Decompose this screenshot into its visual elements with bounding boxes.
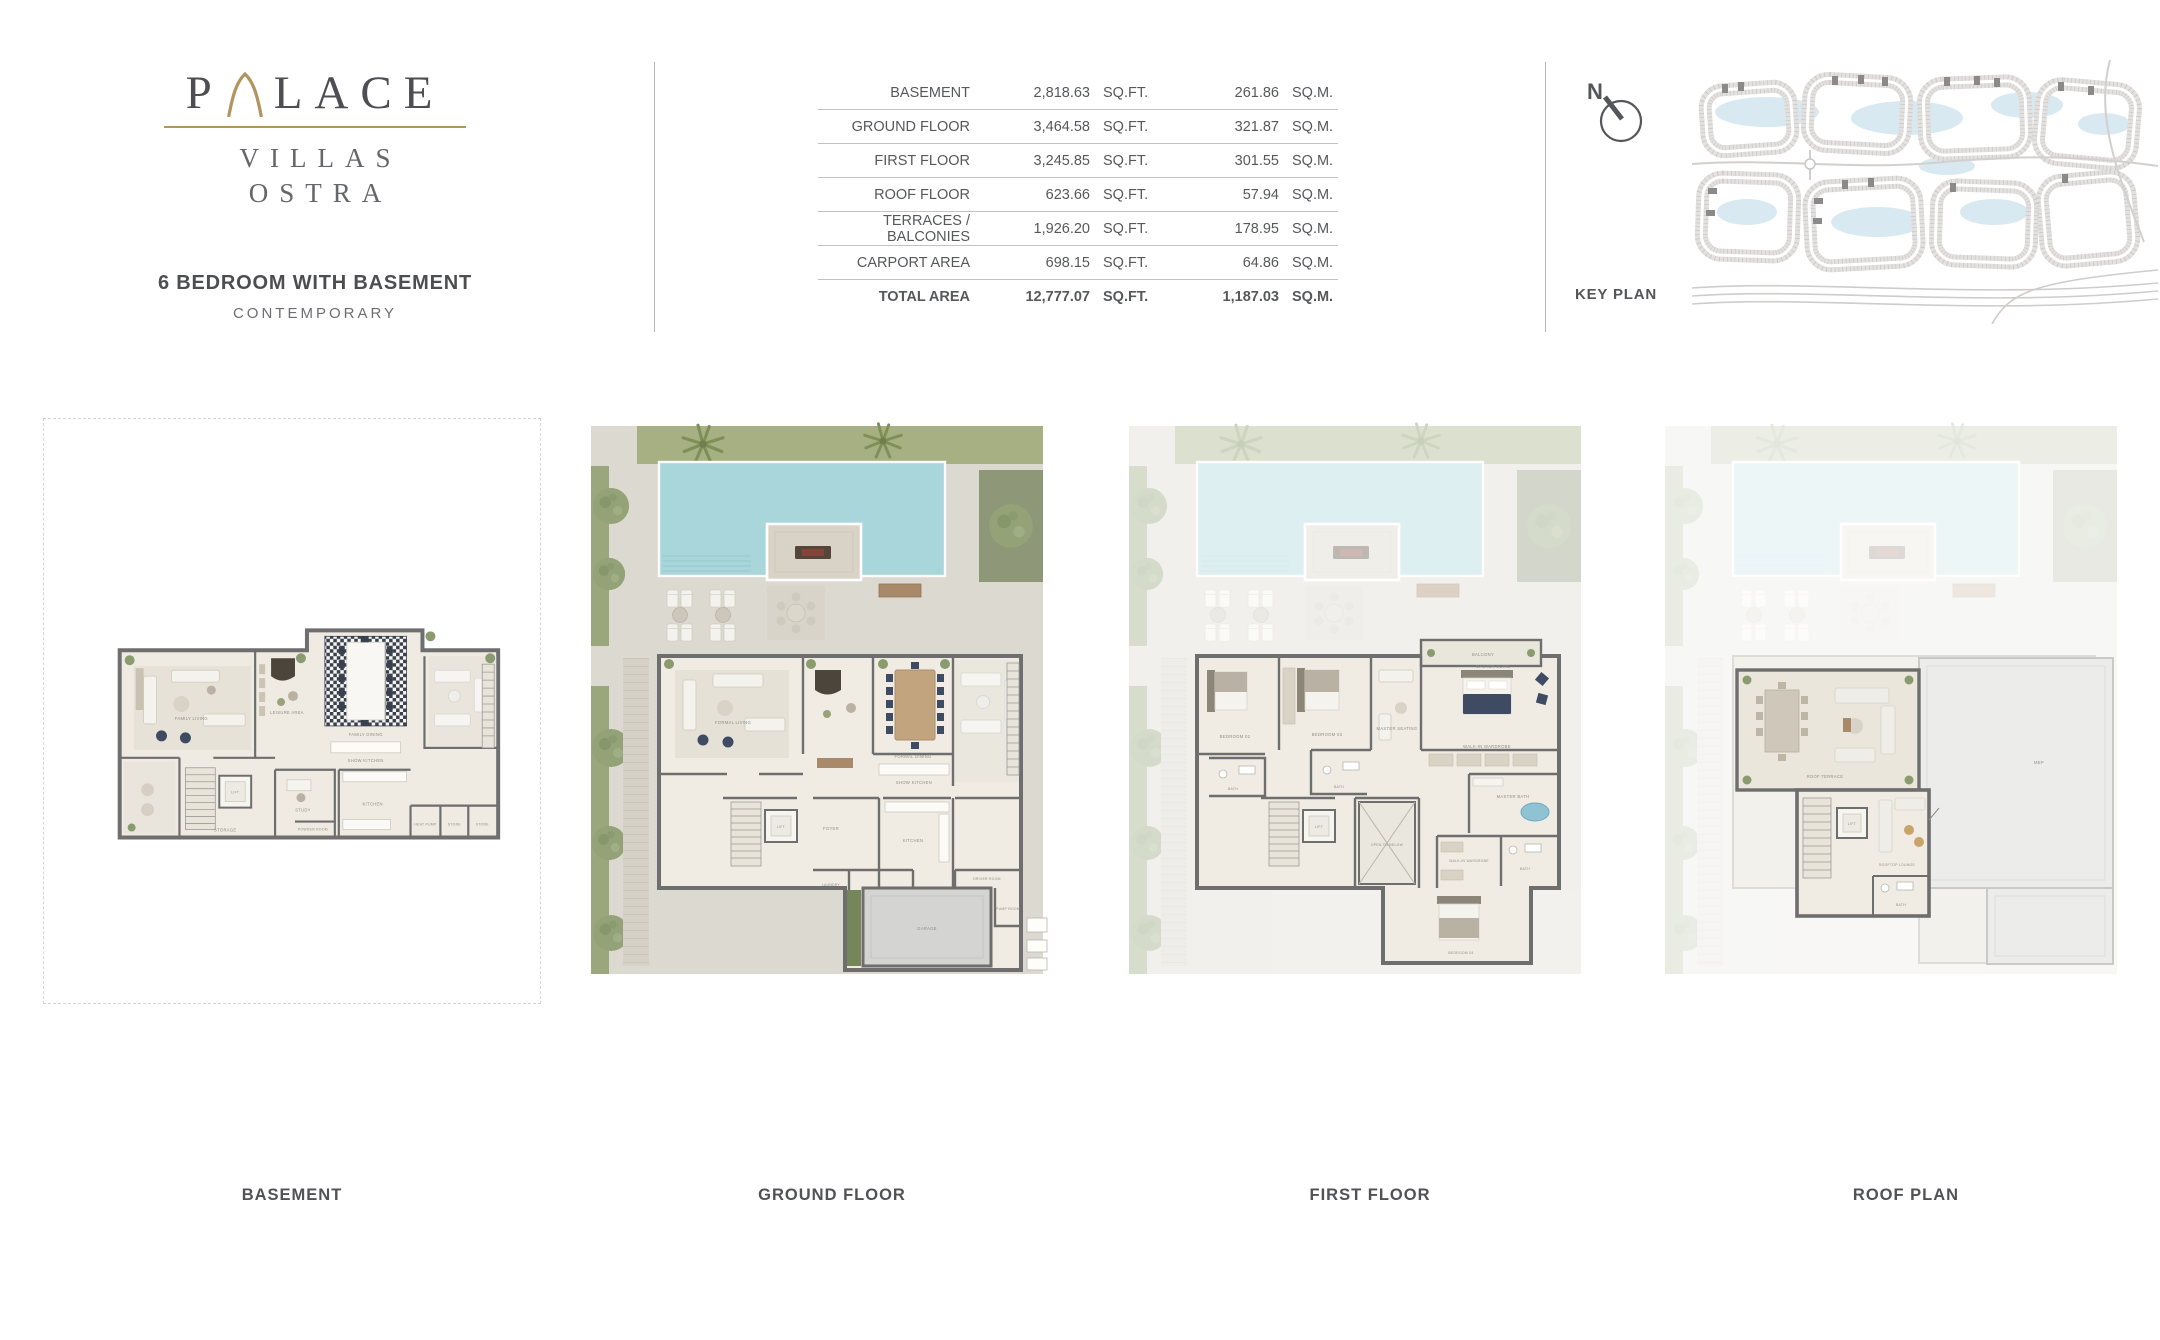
table-row: FIRST FLOOR 3,245.85 SQ.FT. 301.55 SQ.M. <box>818 143 1338 177</box>
area-table: BASEMENT 2,818.63 SQ.FT. 261.86 SQ.M. GR… <box>818 76 1338 313</box>
room-label: MASTER SUITE <box>1476 664 1511 669</box>
header-divider-left <box>654 62 655 332</box>
room-label: SHOW KITCHEN <box>896 780 932 785</box>
sqft-unit: SQ.FT. <box>1090 221 1179 237</box>
room-label: LIFT <box>231 791 239 795</box>
caption-first-floor: FIRST FLOOR <box>1121 1186 1619 1205</box>
caption-basement: BASEMENT <box>43 1186 541 1205</box>
style-subtitle: CONTEMPORARY <box>150 305 480 322</box>
row-label: TERRACES / BALCONIES <box>818 213 970 245</box>
unit-type-title: 6 BEDROOM WITH BASEMENT <box>150 272 480 295</box>
sqft-value: 623.66 <box>970 187 1090 203</box>
room-label: MASTER SEATING <box>1377 726 1418 731</box>
sqft-value: 2,818.63 <box>970 85 1090 101</box>
ground-floor-plan-panel: FORMAL LIVING FORMAL DINING SHOW KITCHEN… <box>583 418 1081 1004</box>
gold-divider <box>164 126 466 128</box>
room-label: STORE <box>476 823 490 827</box>
room-label: FORMAL LIVING <box>715 720 751 725</box>
room-label: SHOW KITCHEN <box>348 758 384 763</box>
room-label: ROOF TERRACE <box>1807 774 1844 779</box>
sqm-value: 178.95 <box>1179 221 1279 237</box>
row-label: ROOF FLOOR <box>818 187 970 203</box>
roof-plan-panel: MEP ROOF TERRACE LIFT ROOFTOP LOUNGE <box>1657 418 2155 1004</box>
sqm-unit: SQ.M. <box>1279 289 1333 305</box>
wordmark-lace: LACE <box>274 70 445 117</box>
room-label: KITCHEN <box>903 838 923 843</box>
sqm-unit: SQ.M. <box>1279 119 1333 135</box>
table-row: BASEMENT 2,818.63 SQ.FT. 261.86 SQ.M. <box>818 76 1338 109</box>
sqft-unit: SQ.FT. <box>1090 85 1179 101</box>
sqft-value: 12,777.07 <box>970 289 1090 305</box>
room-label: ROOFTOP LOUNGE <box>1879 863 1916 867</box>
room-label: STORAGE <box>214 828 236 833</box>
sqm-unit: SQ.M. <box>1279 255 1333 271</box>
row-label: BASEMENT <box>818 85 970 101</box>
sqft-unit: SQ.FT. <box>1090 153 1179 169</box>
room-label: BALCONY <box>1472 652 1494 657</box>
first-floor-plan-panel: BALCONY MASTER SUITE WALK-IN WARDROBE MA <box>1121 418 1619 1004</box>
room-label: GARAGE <box>917 926 937 931</box>
room-label: FOYER <box>823 826 839 831</box>
brand-line-villas: VILLAS <box>150 141 480 176</box>
brand-logo: P LACE VILLAS OSTRA <box>150 70 480 211</box>
ground-floor-plan: FORMAL LIVING FORMAL DINING SHOW KITCHEN… <box>583 418 1081 1004</box>
brochure-page: P LACE VILLAS OSTRA 6 BEDROOM WITH BASEM… <box>0 0 2160 1340</box>
room-label: PUMP ROOM <box>996 907 1020 911</box>
room-label: FORMAL DINING <box>894 754 931 759</box>
row-label: TOTAL AREA <box>818 289 970 305</box>
north-compass-icon: N <box>1584 78 1646 144</box>
sqft-unit: SQ.FT. <box>1090 255 1179 271</box>
sqft-unit: SQ.FT. <box>1090 187 1179 203</box>
sqm-value: 57.94 <box>1179 187 1279 203</box>
room-label: LIFT <box>777 825 785 829</box>
room-label: BATH <box>1520 867 1530 871</box>
row-label: CARPORT AREA <box>818 255 970 271</box>
caption-roof-plan: ROOF PLAN <box>1657 1186 2155 1205</box>
arch-icon <box>226 71 264 117</box>
room-label: KITCHEN <box>362 802 382 807</box>
room-label: BATH <box>1228 787 1238 791</box>
sqm-value: 1,187.03 <box>1179 289 1279 305</box>
sqft-value: 3,464.58 <box>970 119 1090 135</box>
room-label: LIFT <box>1848 822 1856 826</box>
table-row: ROOF FLOOR 623.66 SQ.FT. 57.94 SQ.M. <box>818 177 1338 211</box>
key-plan-label: KEY PLAN <box>1558 286 1674 303</box>
roof-plan: MEP ROOF TERRACE LIFT ROOFTOP LOUNGE <box>1657 418 2155 1004</box>
sqft-value: 3,245.85 <box>970 153 1090 169</box>
room-label: POWDER ROOM <box>298 828 328 832</box>
sqm-value: 321.87 <box>1179 119 1279 135</box>
room-label: STUDY <box>295 808 311 813</box>
room-label: WALK-IN WARDROBE <box>1449 859 1489 863</box>
room-label: BATH <box>1334 785 1344 789</box>
wordmark-p: P <box>186 70 224 117</box>
room-label: HEAT PUMP <box>414 823 437 827</box>
sqm-value: 261.86 <box>1179 85 1279 101</box>
brand-wordmark: P LACE <box>150 70 480 117</box>
sqft-value: 1,926.20 <box>970 221 1090 237</box>
row-label: FIRST FLOOR <box>818 153 970 169</box>
brand-line-ostra: OSTRA <box>150 176 480 211</box>
sqm-unit: SQ.M. <box>1279 187 1333 203</box>
sqft-unit: SQ.FT. <box>1090 289 1179 305</box>
room-label: FAMILY LIVING <box>175 716 208 721</box>
room-label: MASTER BATH <box>1497 794 1530 799</box>
table-row: GROUND FLOOR 3,464.58 SQ.FT. 321.87 SQ.M… <box>818 109 1338 143</box>
room-label: STORE <box>448 823 462 827</box>
sqm-value: 64.86 <box>1179 255 1279 271</box>
sqm-unit: SQ.M. <box>1279 85 1333 101</box>
basement-plan-panel: FAMILY LIVING LEISURE AREA FAMILY DINING… <box>43 418 541 1004</box>
table-row: TERRACES / BALCONIES 1,926.20 SQ.FT. 178… <box>818 211 1338 245</box>
room-label: BEDROOM 02 <box>1220 734 1251 739</box>
key-plan-map <box>1692 60 2158 324</box>
compass-n-label: N <box>1587 79 1603 104</box>
room-label: BEDROOM 04 <box>1448 951 1473 955</box>
caption-ground-floor: GROUND FLOOR <box>583 1186 1081 1205</box>
basement-floor-plan: FAMILY LIVING LEISURE AREA FAMILY DINING… <box>44 419 540 1003</box>
sqft-value: 698.15 <box>970 255 1090 271</box>
sqm-unit: SQ.M. <box>1279 221 1333 237</box>
room-label: OPEN TO BELOW <box>1371 843 1404 847</box>
room-label: DRIVER ROOM <box>973 877 1001 881</box>
sqm-value: 301.55 <box>1179 153 1279 169</box>
room-label: LEISURE AREA <box>270 710 304 715</box>
room-label: FAMILY DINING <box>349 732 383 737</box>
table-row: CARPORT AREA 698.15 SQ.FT. 64.86 SQ.M. <box>818 245 1338 279</box>
sqm-unit: SQ.M. <box>1279 153 1333 169</box>
first-floor-plan: BALCONY MASTER SUITE WALK-IN WARDROBE MA <box>1121 418 1619 1004</box>
room-label: BEDROOM 03 <box>1312 732 1343 737</box>
room-label: LIFT <box>1315 825 1323 829</box>
table-row-total: TOTAL AREA 12,777.07 SQ.FT. 1,187.03 SQ.… <box>818 279 1338 313</box>
row-label: GROUND FLOOR <box>818 119 970 135</box>
sqft-unit: SQ.FT. <box>1090 119 1179 135</box>
room-label: MEP <box>2034 760 2044 765</box>
header-divider-right <box>1545 62 1546 332</box>
room-label: LAUNDRY <box>822 883 841 887</box>
room-label: BATH <box>1896 903 1906 907</box>
room-label: WALK-IN WARDROBE <box>1463 744 1511 749</box>
